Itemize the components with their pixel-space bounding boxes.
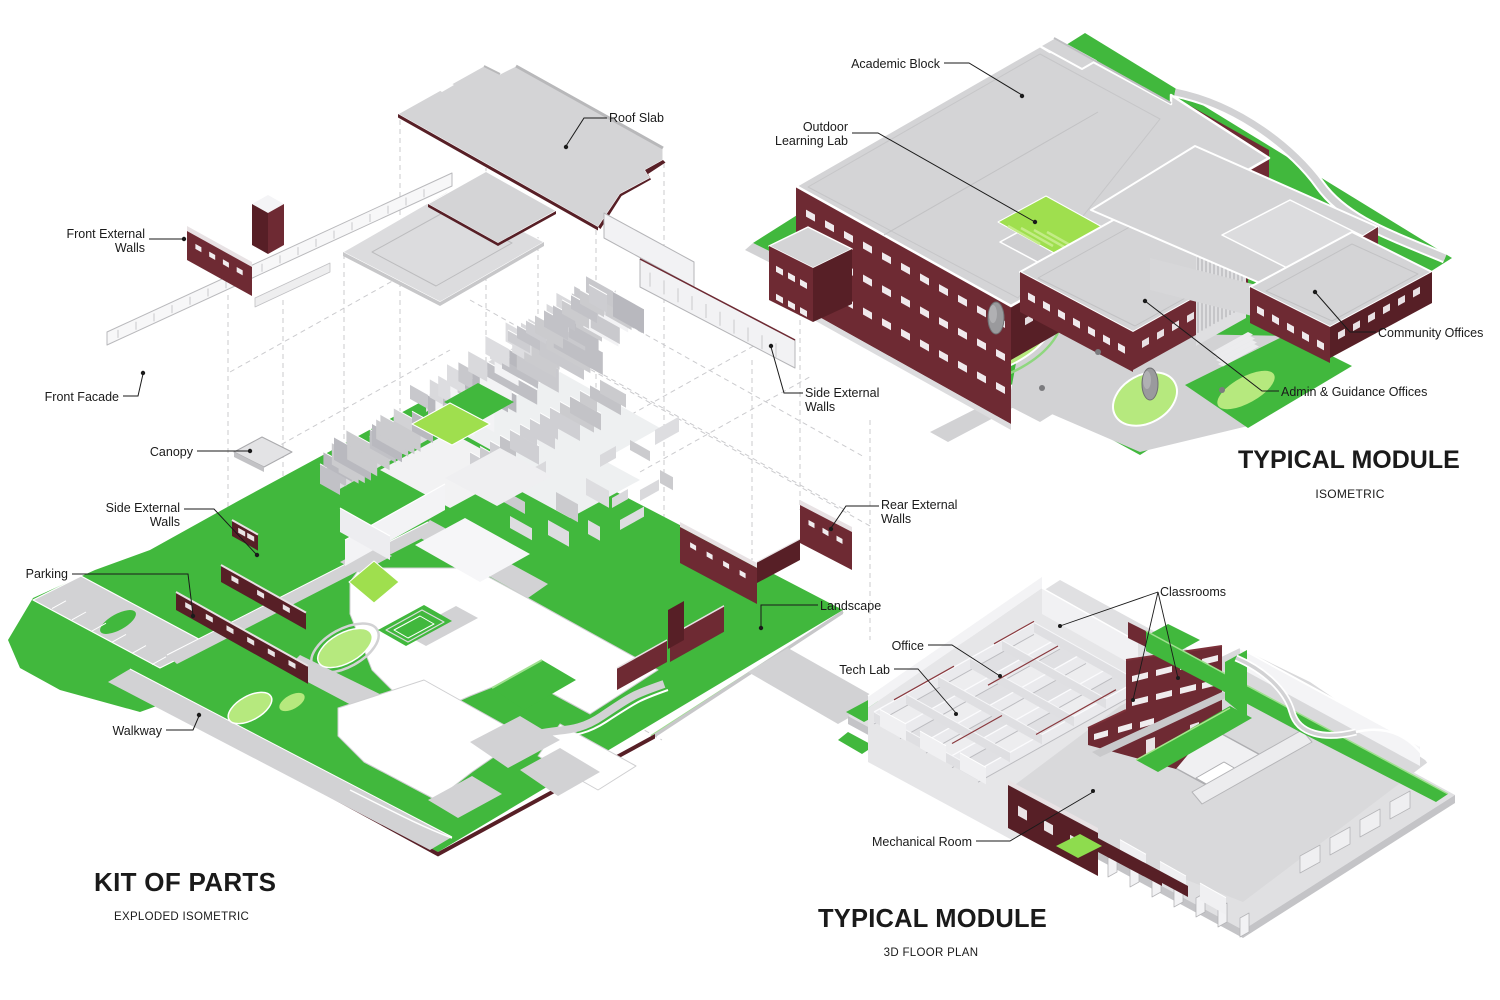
svg-text:Canopy: Canopy [150,445,194,459]
svg-text:Walls: Walls [115,241,145,255]
svg-text:Tech Lab: Tech Lab [839,663,890,677]
svg-text:Walkway: Walkway [112,724,162,738]
svg-text:Mechanical Room: Mechanical Room [872,835,972,849]
svg-text:KIT OF PARTS: KIT OF PARTS [94,867,276,897]
svg-text:Landscape: Landscape [820,599,881,613]
svg-text:Front External: Front External [66,227,145,241]
svg-text:Office: Office [892,639,924,653]
svg-text:Walls: Walls [150,515,180,529]
svg-text:Classrooms: Classrooms [1160,585,1226,599]
svg-text:Walls: Walls [805,400,835,414]
svg-text:Rear External: Rear External [881,498,957,512]
svg-text:Side External: Side External [805,386,879,400]
svg-text:Community Offices: Community Offices [1378,326,1483,340]
svg-text:Front Facade: Front Facade [45,390,119,404]
svg-text:Outdoor: Outdoor [803,120,848,134]
svg-text:Roof Slab: Roof Slab [609,111,664,125]
svg-text:Academic Block: Academic Block [851,57,941,71]
svg-text:EXPLODED ISOMETRIC: EXPLODED ISOMETRIC [114,911,249,923]
svg-text:TYPICAL MODULE: TYPICAL MODULE [818,905,1047,933]
svg-text:3D FLOOR PLAN: 3D FLOOR PLAN [884,947,979,959]
svg-text:Walls: Walls [881,512,911,526]
svg-text:Parking: Parking [26,567,68,581]
svg-text:TYPICAL MODULE: TYPICAL MODULE [1238,446,1460,474]
svg-text:Learning Lab: Learning Lab [775,134,848,148]
svg-text:Side External: Side External [106,501,180,515]
svg-text:Admin & Guidance Offices: Admin & Guidance Offices [1281,385,1427,399]
svg-text:ISOMETRIC: ISOMETRIC [1315,487,1384,501]
